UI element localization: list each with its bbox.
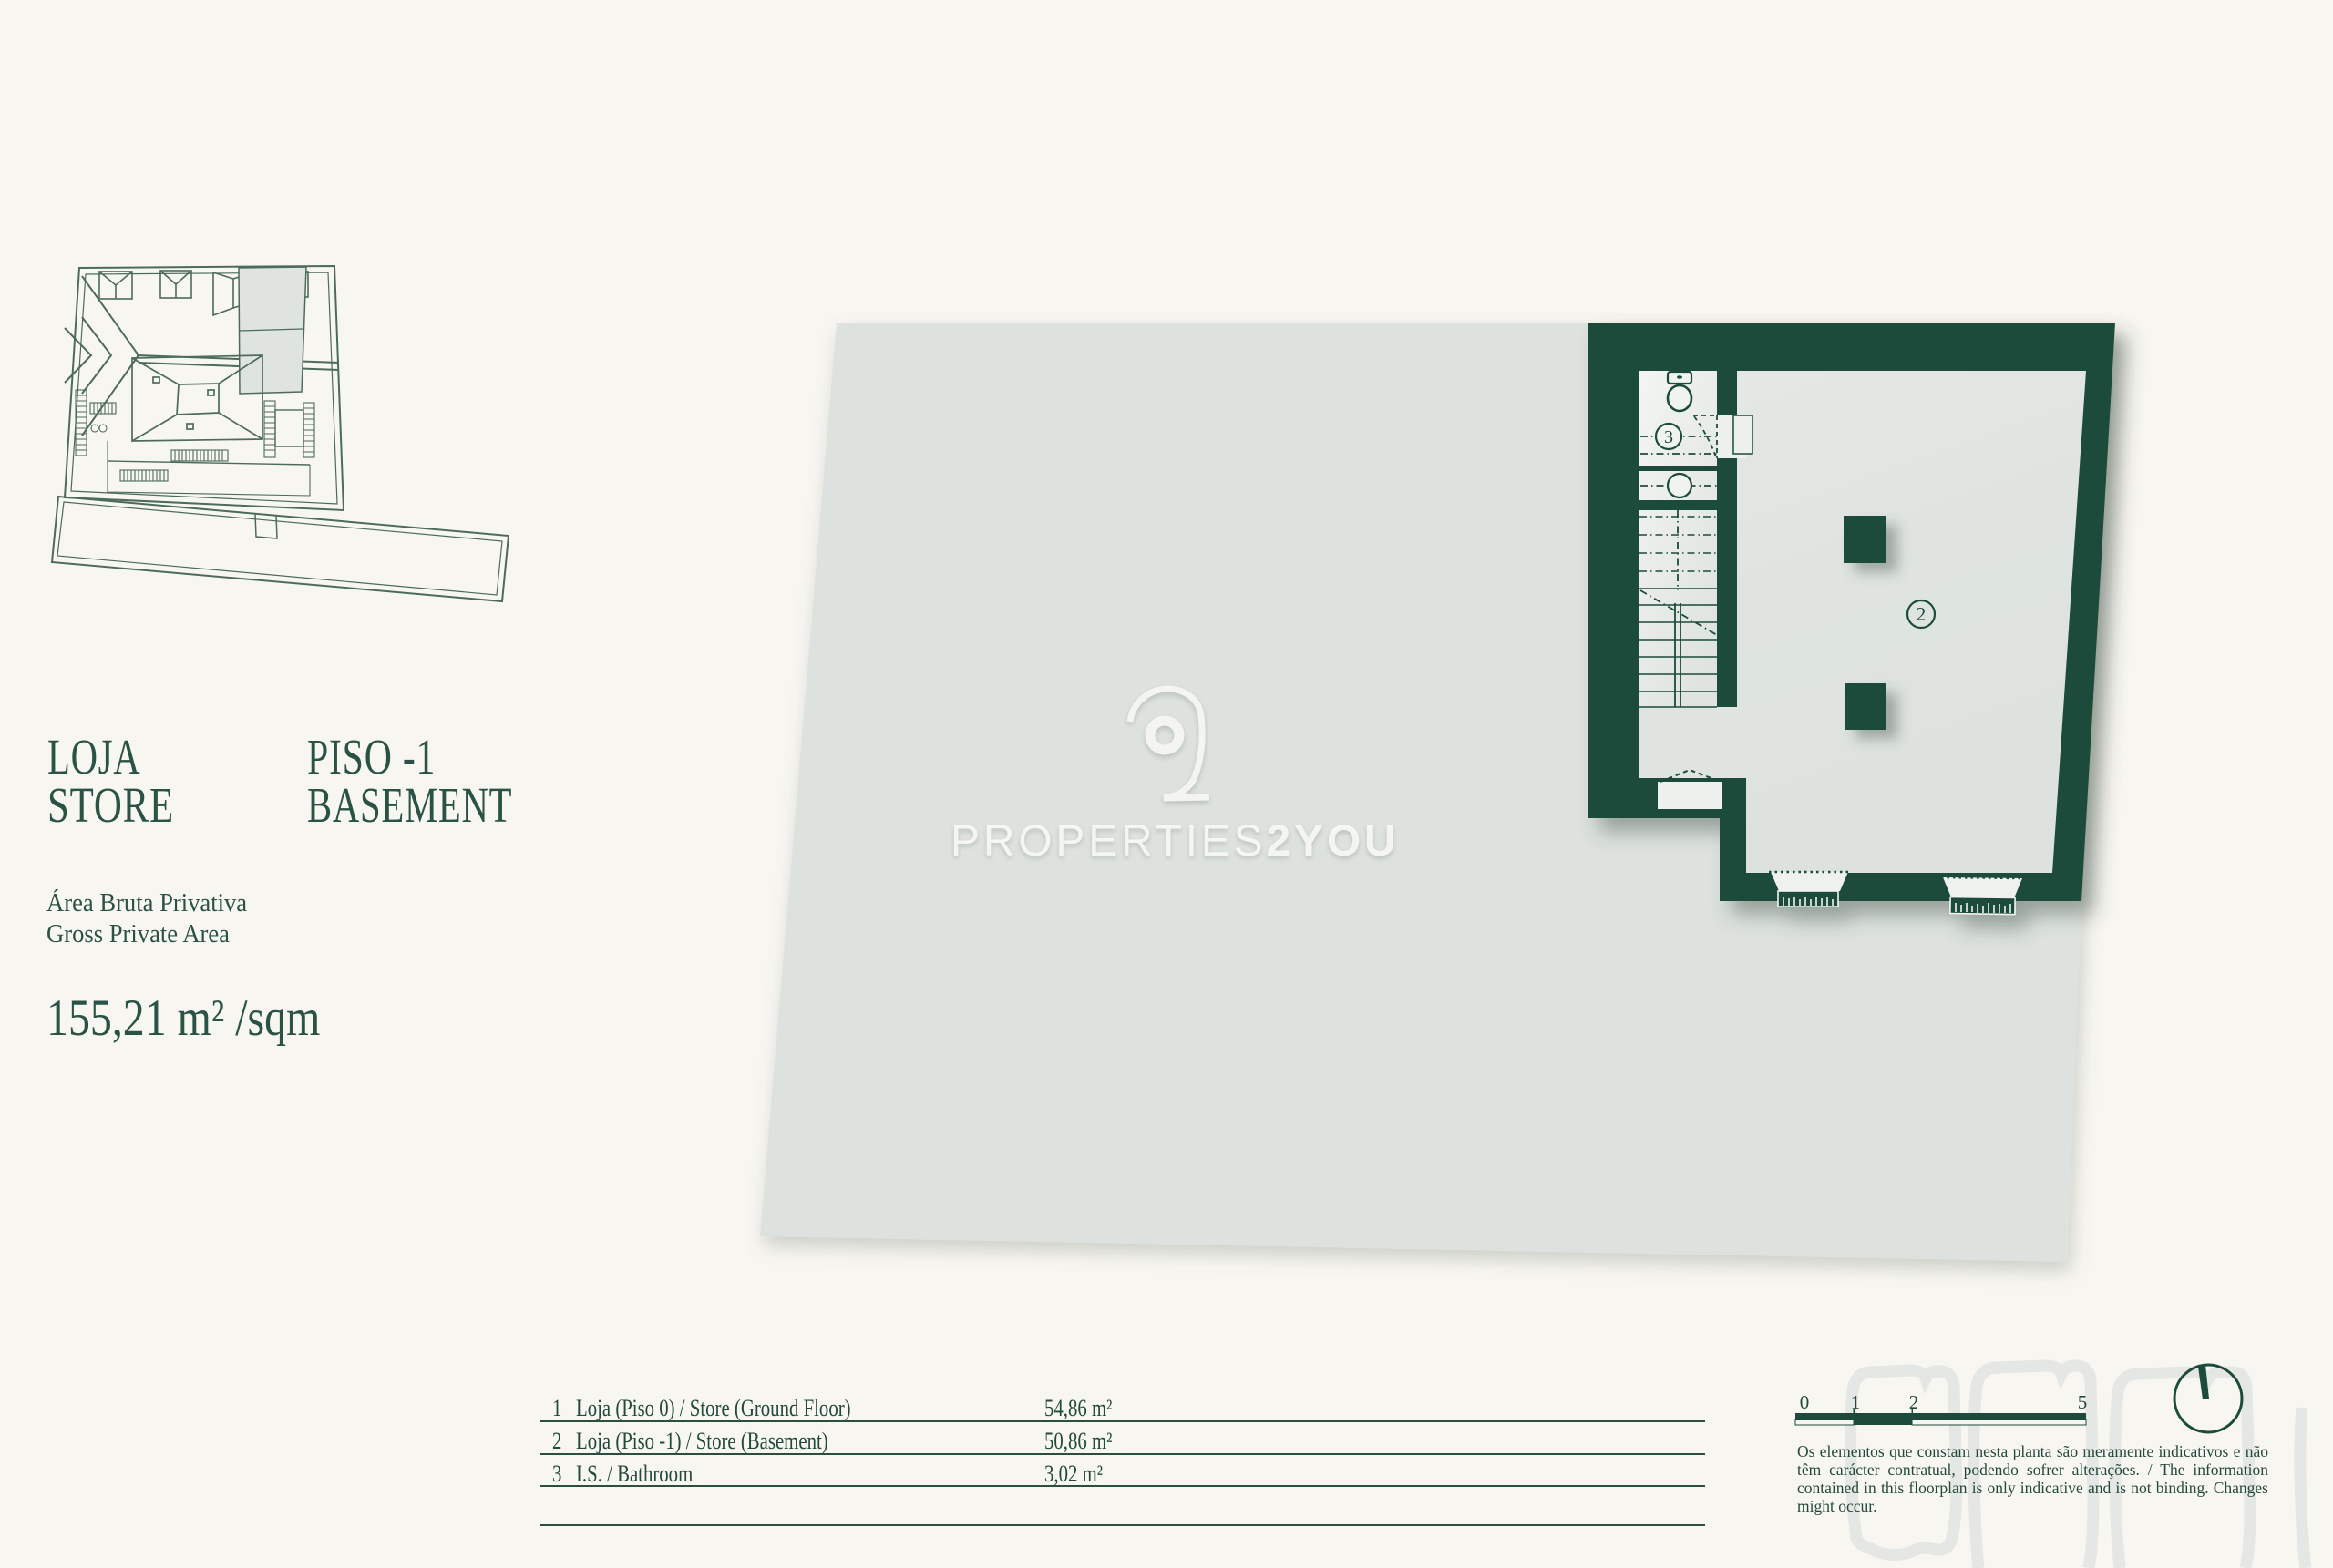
svg-text:3: 3 [1664, 427, 1673, 447]
svg-text:2: 2 [1917, 603, 1927, 625]
